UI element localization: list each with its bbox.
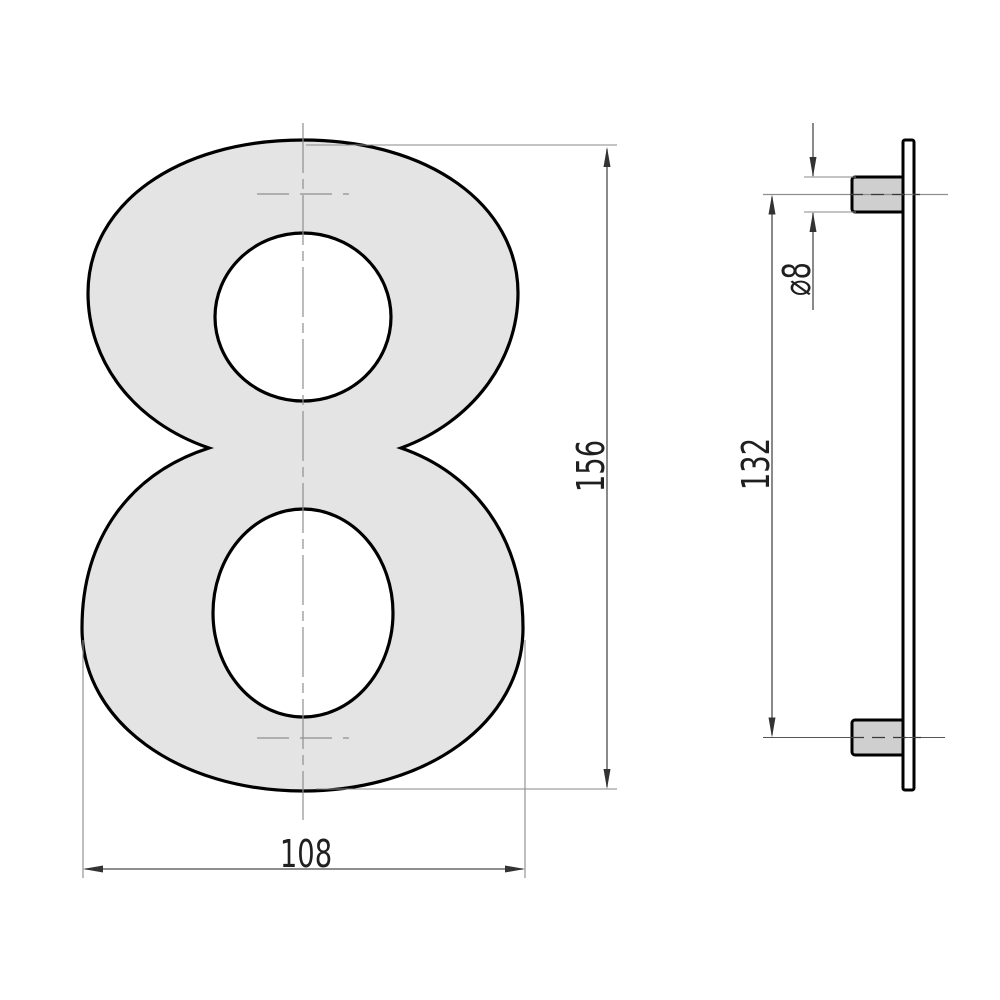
drawing-canvas: 156 108 ⌀8: [0, 0, 1000, 1000]
front-view: 156 108: [82, 123, 617, 878]
side-view: ⌀8 132: [733, 123, 948, 790]
width-arrow-right-icon: [505, 866, 525, 873]
spacing-arrow-top-icon: [769, 195, 776, 215]
width-dimension-label: 108: [280, 831, 332, 876]
diameter-arrow-down-icon: [810, 157, 817, 177]
spacing-arrow-bottom-icon: [769, 718, 776, 738]
dimension-peg-diameter: ⌀8: [774, 123, 856, 310]
width-arrow-left-icon: [83, 866, 103, 873]
diameter-arrow-up-icon: [810, 212, 817, 232]
diameter-dimension-label: ⌀8: [774, 262, 819, 296]
dimension-peg-spacing: 132: [733, 195, 778, 738]
technical-drawing: 156 108 ⌀8: [0, 0, 1000, 1000]
height-arrow-top-icon: [604, 147, 611, 167]
spacing-dimension-label: 132: [733, 438, 778, 490]
height-arrow-bottom-icon: [604, 769, 611, 789]
backplate-profile: [903, 140, 914, 790]
height-dimension-label: 156: [568, 440, 613, 492]
